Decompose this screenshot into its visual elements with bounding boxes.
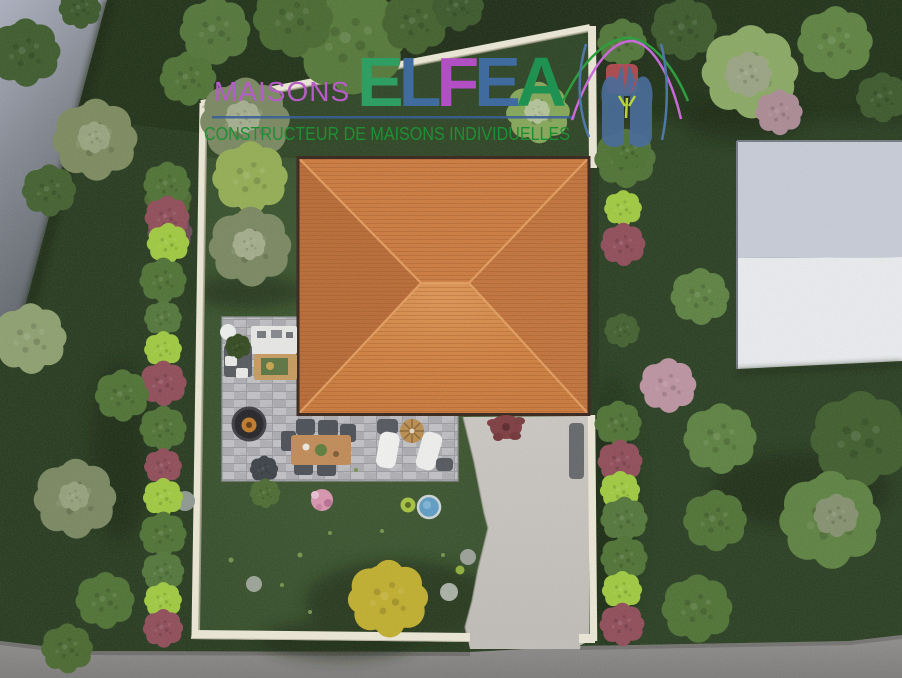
svg-text:ELFEA: ELFEA: [357, 43, 565, 121]
svg-text:CONSTRUCTEUR DE MAISONS INDIVI: CONSTRUCTEUR DE MAISONS INDIVIDUELLES: [204, 124, 570, 144]
svg-text:MAISONS: MAISONS: [214, 76, 350, 107]
